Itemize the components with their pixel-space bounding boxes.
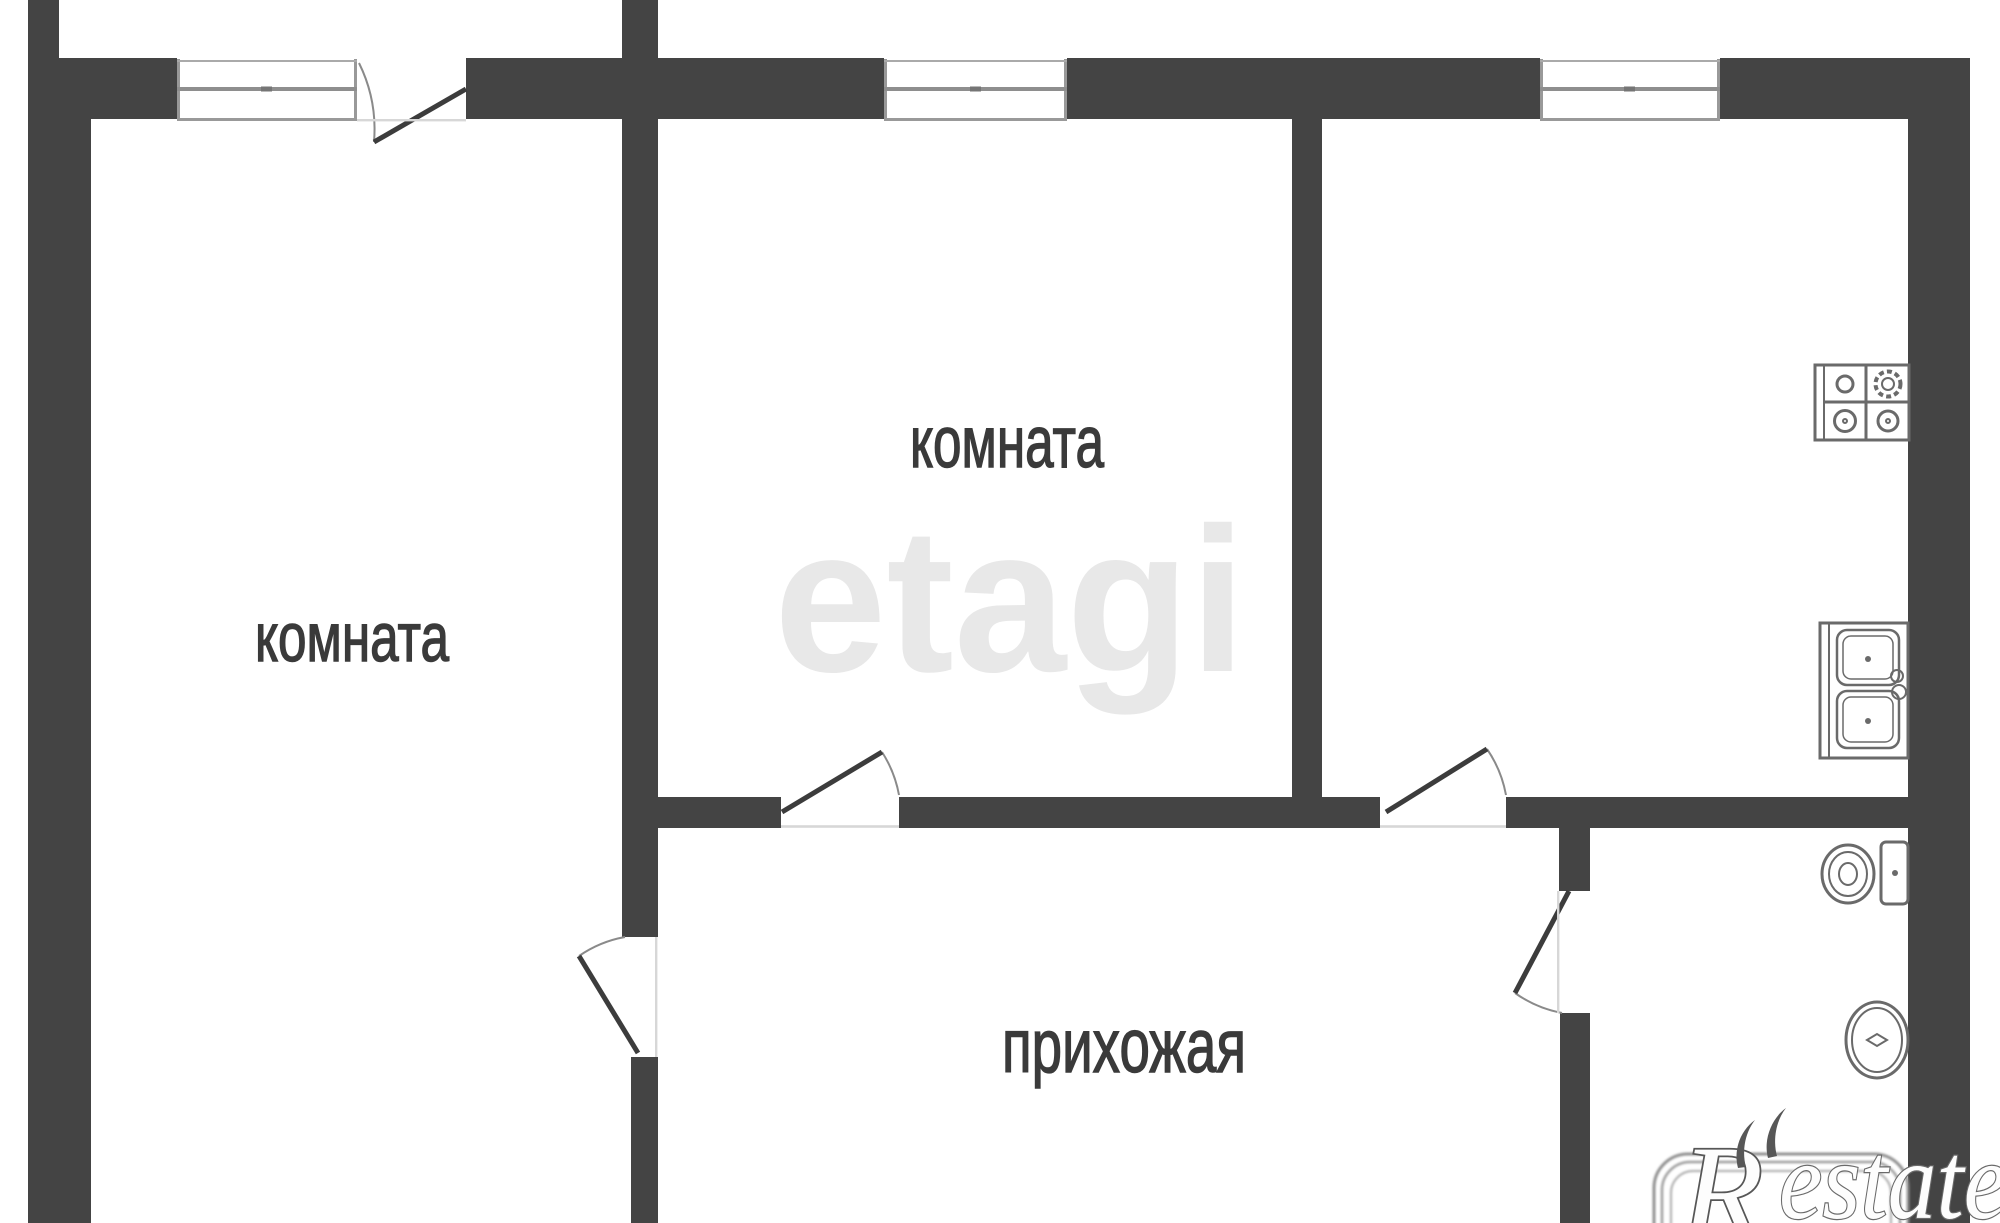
svg-text:estate: estate (1779, 1120, 2000, 1223)
svg-text:R: R (1680, 1119, 1763, 1223)
svg-text:комната: комната (910, 403, 1105, 483)
svg-text:etagi: etagi (774, 485, 1246, 715)
svg-text:прихожая: прихожая (1002, 1004, 1246, 1089)
svg-text:комната: комната (255, 599, 449, 676)
